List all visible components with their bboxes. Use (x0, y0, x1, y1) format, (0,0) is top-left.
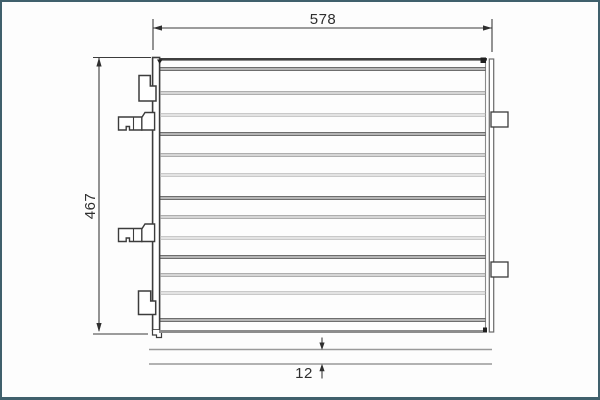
core-top-edge (159, 58, 487, 61)
top-dim-arrow-left (153, 25, 162, 30)
left-dim-arrow-bottom (96, 323, 101, 332)
pipe-connector-lower (119, 224, 155, 242)
core-tubes-dark (160, 68, 486, 321)
top-right-corner-clip (481, 58, 487, 64)
gap-dimension (319, 338, 324, 379)
top-dim-arrow-right (483, 25, 492, 30)
bottom-plate-lines (149, 350, 492, 365)
right-tab-upper (491, 112, 508, 127)
right-tank (489, 59, 493, 332)
core-tubes-gray (160, 92, 486, 276)
left-dim-arrow-top (96, 58, 101, 67)
right-tab-lower (491, 262, 508, 277)
pipe-connector-upper (119, 113, 155, 131)
dimension-height-label: 467 (83, 179, 99, 233)
core-bottom-edge (159, 330, 487, 333)
core-tubes-light (160, 114, 486, 294)
dimension-gap-label: 12 (288, 366, 320, 382)
dimension-width-label: 578 (296, 12, 350, 28)
bottom-right-corner-clip (483, 328, 487, 333)
catalog-image-frame: 578 467 12 (0, 0, 600, 400)
